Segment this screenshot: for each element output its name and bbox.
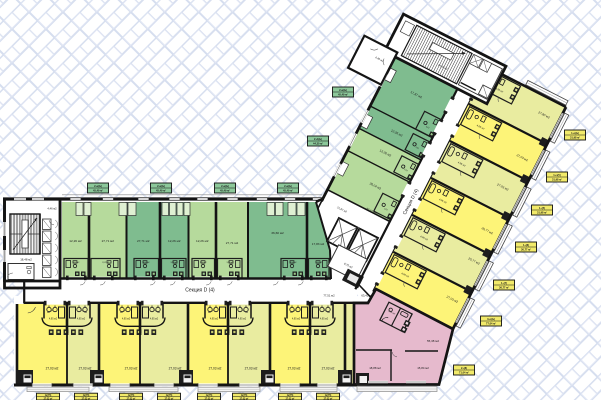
- svg-text:36,60 м2: 36,60 м2: [271, 231, 284, 235]
- svg-text:4,95 м2: 4,95 м2: [122, 319, 131, 321]
- svg-text:27,03 м2: 27,03 м2: [46, 367, 59, 371]
- svg-text:12,26 м2: 12,26 м2: [168, 239, 181, 243]
- svg-text:4,95 м2: 4,95 м2: [49, 319, 58, 321]
- svg-text:Секция D (4): Секция D (4): [185, 288, 215, 294]
- svg-text:27,71 м2: 27,71 м2: [137, 239, 150, 243]
- svg-text:1к(75): 1к(75): [83, 395, 90, 397]
- svg-text:77,51 м2: 77,51 м2: [323, 294, 335, 298]
- svg-text:3,52 м2: 3,52 м2: [102, 262, 109, 264]
- svg-text:1к(75): 1к(75): [166, 395, 173, 397]
- svg-text:1к(75): 1к(75): [206, 395, 213, 397]
- svg-text:1к(75): 1к(75): [287, 395, 294, 397]
- svg-text:3,52 м2: 3,52 м2: [227, 262, 234, 264]
- svg-text:27,03 м2: 27,03 м2: [169, 367, 182, 371]
- svg-text:27,71 м2: 27,71 м2: [226, 241, 239, 245]
- svg-text:18,48 м2: 18,48 м2: [20, 258, 32, 262]
- svg-text:18,88 м2: 18,88 м2: [369, 366, 381, 370]
- svg-text:17,83 м2: 17,83 м2: [312, 242, 325, 246]
- svg-text:55,38 м2: 55,38 м2: [427, 339, 439, 343]
- svg-text:1к(75): 1к(75): [45, 395, 52, 397]
- svg-text:3,52 м2: 3,52 м2: [73, 262, 80, 264]
- svg-text:3,52 м2: 3,52 м2: [200, 262, 207, 264]
- svg-text:27,03 м2: 27,03 м2: [79, 367, 92, 371]
- svg-text:3,52 м2: 3,52 м2: [316, 262, 323, 264]
- svg-text:1к(75): 1к(75): [241, 395, 248, 397]
- svg-text:12,26 м2: 12,26 м2: [196, 239, 209, 243]
- svg-text:15,84 м2: 15,84 м2: [417, 366, 429, 370]
- svg-text:3,52 м2: 3,52 м2: [143, 262, 150, 264]
- svg-text:27,03 м2: 27,03 м2: [322, 367, 335, 371]
- svg-text:4,95 м2: 4,95 м2: [292, 319, 301, 321]
- svg-text:1к(75): 1к(75): [325, 395, 332, 397]
- svg-text:27,03 м2: 27,03 м2: [125, 367, 138, 371]
- svg-text:4,95 м2: 4,95 м2: [238, 319, 247, 321]
- svg-text:27,71 м2: 27,71 м2: [102, 239, 115, 243]
- svg-text:27,03 м2: 27,03 м2: [288, 367, 301, 371]
- svg-text:1к(75): 1к(75): [128, 395, 135, 397]
- svg-text:12,26 м2: 12,26 м2: [69, 239, 82, 243]
- svg-text:27,03 м2: 27,03 м2: [245, 367, 258, 371]
- svg-text:4,95 м2: 4,95 м2: [150, 319, 159, 321]
- svg-text:4,95 м2: 4,95 м2: [320, 319, 329, 321]
- svg-text:4,95 м2: 4,95 м2: [210, 319, 219, 321]
- svg-text:27,03 м2: 27,03 м2: [209, 367, 222, 371]
- svg-text:3,52 м2: 3,52 м2: [171, 262, 178, 264]
- svg-text:3,52 м2: 3,52 м2: [290, 262, 297, 264]
- svg-text:4,95 м2: 4,95 м2: [77, 319, 86, 321]
